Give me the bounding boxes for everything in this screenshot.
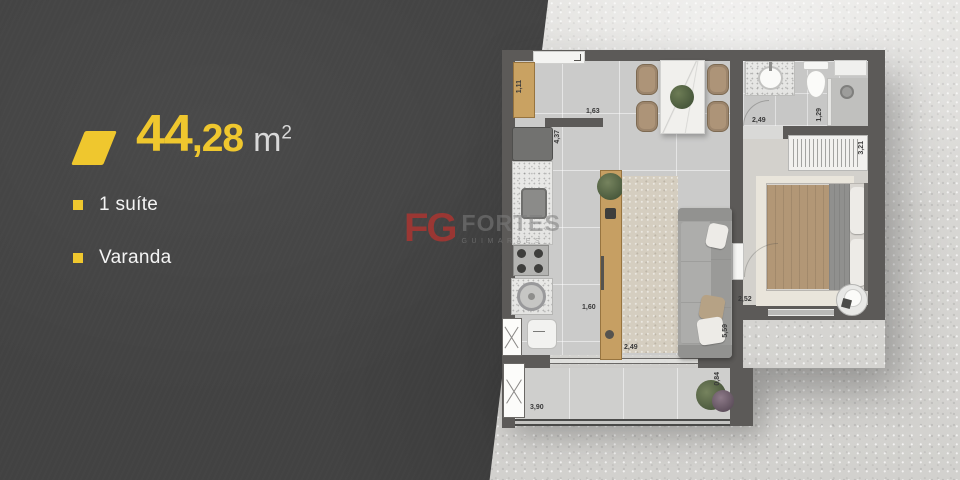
wall-bathroom-corner [730,126,743,139]
sideboard-plant [597,173,624,200]
stove-burner [534,249,543,258]
bed-headboard [864,183,868,291]
area-value-decimal: 28 [202,117,243,161]
dim-kitchen-aisle: 1,60 [582,304,596,311]
feature-item-varanda: Varanda [73,247,172,269]
feature-label: Varanda [99,247,172,269]
wall-right [868,50,885,320]
balcony-plant-flowers [712,390,734,412]
dim-kitchen-run: 4,37 [554,130,561,144]
fridge [512,127,553,161]
dim-living-width: 2,49 [624,344,638,351]
sofa-armrest [678,345,732,358]
dining-chair [636,64,658,95]
dining-chair [707,64,729,95]
bed-throw [829,184,850,290]
toilet-tank [803,61,829,70]
basin-drain [528,293,535,300]
entry-door-swing-icon [574,54,581,61]
sideboard-decor [605,330,614,339]
dim-bedroom-width: 2,52 [738,296,752,303]
sideboard-decor [605,208,616,219]
bedroom-door-leaf [732,243,744,280]
feature-list: 1 suíte Varanda [73,194,172,269]
dim-entry-wall: 1,63 [586,108,600,115]
dining-chair [707,101,729,132]
feature-bullet-icon [73,200,83,210]
area-value-separator: , [192,117,202,161]
balcony-sliding-door [550,358,698,364]
dim-living-length: 5,59 [722,324,729,338]
dining-chair [636,101,658,132]
washbasin-faucet [769,62,772,71]
stove-burner [517,249,526,258]
dim-balcony-depth: 0,84 [714,372,721,386]
floorplan: 1,11 1,63 4,37 1,60 2,49 5,59 3,90 0,84 … [500,38,892,438]
living-rug [622,176,678,353]
shower-head [840,85,854,99]
feature-item-suite: 1 suíte [73,194,172,216]
balcony-shaft [503,363,525,418]
dim-bedroom-length: 3,21 [858,141,865,155]
area-parallelogram-icon [71,131,117,165]
area-unit: m2 [253,121,292,160]
bathroom-door-threshold [743,126,783,139]
balcony-glass-railing [515,419,730,426]
bedroom-window [768,309,834,316]
sofa-armrest [678,208,732,221]
wall-kitchen-stub [545,118,603,127]
dim-bathroom-width: 2,49 [752,117,766,124]
shower-partition [827,78,832,126]
kitchen-sink [521,188,547,219]
stove-burner [534,264,543,273]
sideboard-handle [601,256,604,290]
wardrobe-hangers [793,139,859,167]
dim-entry-counter: 1,11 [516,80,523,93]
dim-bathroom-depth: 1,29 [816,108,823,122]
area-value-whole: 44 [136,104,192,164]
info-panel: 44,28 m2 1 suíte Varanda [0,0,420,480]
feature-bullet-icon [73,253,83,263]
laundry-tub [527,319,557,349]
area-unit-exponent: 2 [281,123,292,144]
table-plant [670,85,694,109]
dim-balcony-length: 3,90 [530,404,544,411]
stove-burner [517,264,526,273]
bathroom-shelf [834,60,867,76]
area-row: 44,28 m2 [78,104,292,164]
feature-label: 1 suíte [99,194,158,216]
service-shaft [502,318,522,356]
laundry-tub-faucet [533,331,545,332]
